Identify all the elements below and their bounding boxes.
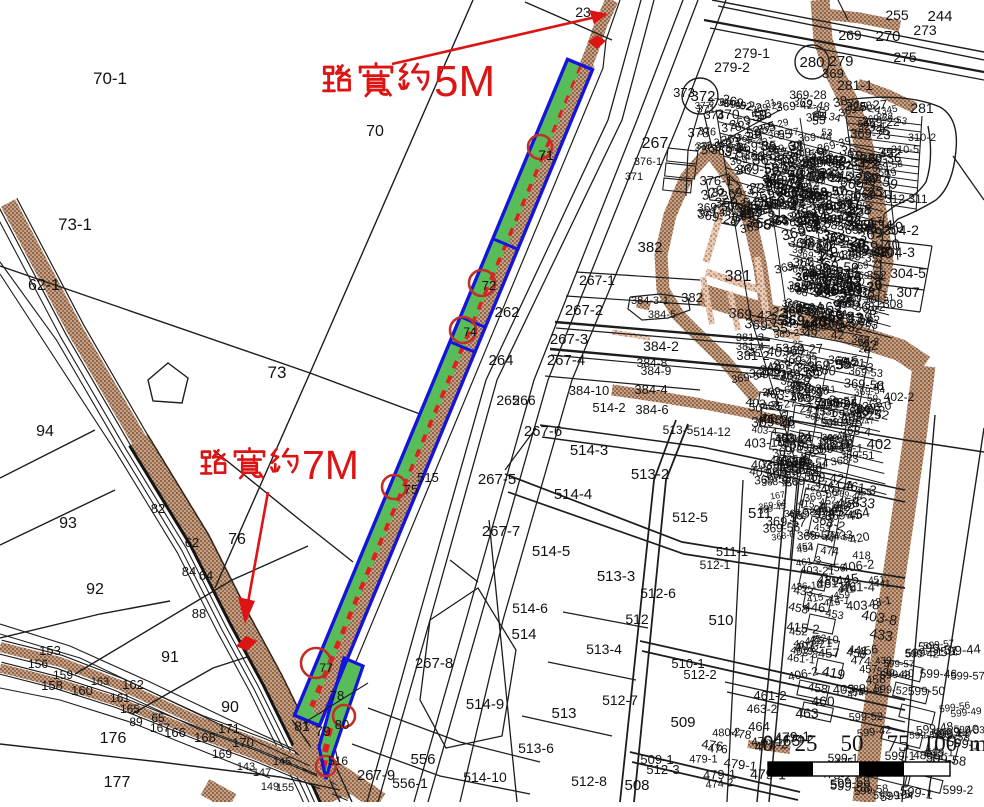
svg-text:64: 64: [199, 568, 213, 583]
svg-text:446: 446: [803, 599, 826, 615]
svg-text:599-2: 599-2: [943, 783, 974, 797]
svg-text:281-1: 281-1: [837, 77, 873, 93]
svg-text:32: 32: [846, 205, 860, 219]
svg-text:509: 509: [670, 714, 695, 731]
svg-text:474: 474: [850, 653, 871, 668]
svg-text:304-3: 304-3: [879, 244, 915, 260]
svg-text:599-40: 599-40: [880, 668, 915, 682]
svg-text:280: 280: [799, 54, 824, 71]
svg-text:73: 73: [268, 363, 287, 382]
svg-text:71: 71: [538, 147, 554, 163]
svg-text:512-8: 512-8: [571, 773, 607, 789]
svg-text:76: 76: [228, 531, 246, 548]
svg-text:512-6: 512-6: [640, 585, 676, 601]
svg-text:m: m: [969, 731, 984, 756]
svg-text:177: 177: [104, 774, 131, 791]
svg-text:264: 264: [488, 352, 513, 369]
svg-text:384-3-1: 384-3-1: [631, 295, 669, 307]
svg-text:170: 170: [232, 735, 254, 750]
svg-text:310-5: 310-5: [891, 144, 919, 156]
svg-text:512-7: 512-7: [602, 692, 638, 708]
svg-text:514-9: 514-9: [466, 696, 504, 713]
svg-text:93: 93: [59, 515, 77, 532]
svg-text:82: 82: [151, 501, 165, 516]
svg-text:167: 167: [150, 721, 170, 735]
svg-text:452: 452: [809, 633, 827, 646]
svg-text:25: 25: [795, 731, 818, 756]
svg-text:74: 74: [463, 325, 477, 339]
svg-text:513-4: 513-4: [586, 641, 622, 657]
svg-text:54: 54: [810, 208, 830, 227]
svg-text:155: 155: [276, 782, 294, 794]
svg-text:474: 474: [787, 509, 805, 522]
svg-text:371: 371: [625, 171, 643, 183]
svg-text:376-1: 376-1: [699, 173, 732, 188]
svg-text:461-2: 461-2: [753, 688, 786, 703]
svg-text:70-1: 70-1: [93, 69, 127, 88]
svg-text:145: 145: [273, 756, 291, 768]
svg-text:368-2: 368-2: [855, 300, 886, 314]
svg-text:310-2: 310-2: [908, 132, 936, 144]
svg-text:270: 270: [875, 28, 900, 45]
svg-text:599-46: 599-46: [920, 666, 958, 681]
svg-text:479-1: 479-1: [689, 753, 717, 765]
svg-text:514-3: 514-3: [570, 442, 608, 459]
svg-text:381-4: 381-4: [736, 341, 764, 353]
svg-text:37: 37: [763, 170, 779, 186]
svg-text:62: 62: [185, 535, 199, 550]
svg-text:512-3: 512-3: [646, 762, 679, 777]
svg-text:147: 147: [253, 767, 271, 779]
svg-text:378: 378: [725, 143, 743, 155]
svg-text:153: 153: [39, 643, 61, 658]
svg-text:42: 42: [831, 328, 845, 342]
svg-text:511: 511: [748, 505, 772, 522]
svg-text:89: 89: [129, 715, 143, 729]
svg-text:156: 156: [28, 657, 48, 671]
svg-text:369-57: 369-57: [805, 183, 846, 201]
svg-text:75: 75: [887, 731, 910, 756]
svg-text:514: 514: [511, 626, 536, 643]
svg-text:403-19: 403-19: [769, 454, 807, 468]
svg-text:514-12: 514-12: [693, 425, 731, 439]
svg-text:445: 445: [815, 505, 837, 521]
svg-text:384-10: 384-10: [569, 383, 609, 398]
svg-text:168: 168: [194, 730, 216, 745]
svg-text:73-1: 73-1: [58, 215, 92, 234]
svg-text:159: 159: [53, 668, 73, 682]
svg-text:311: 311: [908, 192, 927, 206]
svg-text:324-1: 324-1: [858, 121, 886, 133]
svg-text:474: 474: [815, 479, 834, 492]
svg-text:78: 78: [330, 688, 344, 703]
svg-text:513-2: 513-2: [631, 466, 669, 483]
svg-text:267-5: 267-5: [478, 471, 516, 488]
svg-text:384-9: 384-9: [641, 364, 672, 378]
svg-text:511-1: 511-1: [716, 544, 748, 559]
svg-text:75: 75: [404, 482, 418, 497]
svg-text:460: 460: [811, 693, 835, 709]
svg-text:516: 516: [328, 754, 348, 768]
svg-text:515: 515: [417, 470, 439, 485]
svg-text:162: 162: [122, 677, 144, 692]
svg-text:267: 267: [642, 135, 669, 152]
svg-text:49: 49: [803, 325, 818, 341]
svg-text:88: 88: [192, 606, 206, 621]
svg-text:384-6: 384-6: [635, 402, 668, 417]
svg-text:368: 368: [814, 282, 839, 299]
svg-text:381: 381: [725, 268, 752, 285]
svg-text:279-2: 279-2: [714, 59, 750, 75]
svg-text:50: 50: [841, 731, 864, 756]
svg-text:363: 363: [768, 213, 790, 229]
svg-text:370: 370: [716, 106, 740, 122]
svg-text:171: 171: [218, 721, 240, 736]
svg-text:72: 72: [482, 278, 496, 293]
svg-text:480-2: 480-2: [712, 726, 741, 739]
svg-text:0: 0: [762, 731, 774, 756]
svg-text:84: 84: [182, 564, 196, 579]
svg-text:90: 90: [221, 699, 239, 716]
svg-text:304-2: 304-2: [883, 222, 919, 238]
svg-text:433: 433: [851, 492, 877, 511]
svg-text:403-2: 403-2: [791, 391, 822, 405]
svg-text:53: 53: [821, 127, 833, 139]
svg-text:376-1: 376-1: [634, 156, 662, 168]
svg-text:267-7: 267-7: [482, 523, 520, 540]
svg-text:62-1: 62-1: [28, 277, 60, 294]
svg-text:369-28: 369-28: [789, 88, 827, 102]
svg-text:599-52: 599-52: [849, 711, 884, 724]
svg-text:39: 39: [793, 214, 809, 230]
svg-text:376-1: 376-1: [696, 139, 723, 152]
svg-text:266: 266: [512, 392, 536, 408]
svg-text:513: 513: [551, 705, 576, 722]
svg-text:80: 80: [335, 717, 349, 732]
svg-text:267-6: 267-6: [524, 423, 562, 440]
svg-text:452: 452: [789, 626, 808, 638]
svg-text:267-3: 267-3: [550, 331, 588, 348]
svg-text:369-50: 369-50: [697, 200, 735, 215]
svg-text:275: 275: [893, 49, 917, 65]
svg-text:513-6: 513-6: [518, 740, 554, 756]
svg-text:312: 312: [885, 192, 905, 206]
svg-text:143: 143: [237, 761, 255, 773]
svg-text:403-10: 403-10: [818, 441, 850, 453]
svg-text:22: 22: [770, 303, 787, 320]
svg-text:514-6: 514-6: [512, 600, 548, 616]
svg-text:94: 94: [36, 423, 54, 440]
svg-text:269: 269: [838, 27, 862, 43]
svg-text:273: 273: [913, 22, 937, 38]
svg-text:463-2: 463-2: [747, 702, 778, 716]
svg-text:513-3: 513-3: [597, 568, 635, 585]
svg-text:512-5: 512-5: [672, 509, 708, 525]
svg-text:510: 510: [708, 612, 733, 629]
svg-text:382: 382: [681, 290, 703, 305]
svg-text:281: 281: [910, 100, 934, 116]
svg-text:512-2: 512-2: [683, 667, 716, 682]
svg-text:382: 382: [637, 239, 662, 256]
svg-text:165: 165: [120, 702, 140, 716]
svg-text:176: 176: [100, 730, 127, 747]
svg-text:160: 160: [71, 683, 93, 698]
svg-text:514-10: 514-10: [463, 769, 507, 785]
svg-text:346: 346: [854, 173, 876, 188]
svg-text:23: 23: [575, 4, 591, 20]
svg-text:267-4: 267-4: [547, 352, 585, 369]
svg-text:373: 373: [673, 85, 695, 100]
svg-text:267-8: 267-8: [415, 655, 453, 672]
svg-text:70: 70: [366, 123, 384, 140]
svg-text:599-50: 599-50: [908, 684, 946, 698]
svg-text:304-5: 304-5: [890, 265, 926, 281]
svg-text:418: 418: [852, 550, 871, 563]
svg-text:556-1: 556-1: [392, 775, 428, 791]
svg-text:369-59: 369-59: [752, 150, 799, 169]
svg-text:512: 512: [625, 611, 649, 627]
svg-text:267-9: 267-9: [357, 767, 395, 784]
svg-text:402-2: 402-2: [884, 390, 915, 404]
svg-text:403-24: 403-24: [775, 432, 813, 446]
svg-text:262: 262: [494, 304, 519, 321]
svg-text:514-5: 514-5: [532, 543, 570, 560]
svg-text:514-2: 514-2: [592, 400, 625, 415]
svg-text:514-4: 514-4: [554, 486, 592, 503]
svg-text:385: 385: [801, 364, 823, 379]
svg-text:403-5: 403-5: [768, 368, 796, 380]
svg-text:474: 474: [820, 545, 839, 558]
svg-text:433: 433: [832, 527, 854, 543]
svg-text:81: 81: [294, 718, 310, 734]
svg-text:43-1: 43-1: [827, 593, 850, 607]
svg-text:352: 352: [831, 158, 853, 174]
svg-text:599-104: 599-104: [873, 790, 913, 802]
svg-text:5M: 5M: [434, 57, 495, 106]
svg-text:163: 163: [91, 676, 109, 688]
svg-text:457: 457: [818, 645, 840, 660]
svg-text:376: 376: [697, 125, 716, 138]
svg-text:308: 308: [883, 297, 903, 311]
svg-text:7M: 7M: [302, 442, 359, 488]
svg-text:402: 402: [866, 436, 891, 453]
svg-text:453: 453: [813, 523, 831, 535]
svg-text:255: 255: [885, 7, 909, 23]
svg-text:451: 451: [868, 574, 886, 587]
svg-text:46: 46: [802, 233, 816, 247]
svg-text:513-5: 513-5: [663, 423, 694, 437]
svg-text:267-2: 267-2: [565, 302, 603, 319]
svg-text:384-2: 384-2: [643, 338, 679, 354]
svg-text:91: 91: [161, 649, 179, 666]
svg-text:79: 79: [315, 723, 331, 739]
svg-text:508: 508: [624, 777, 649, 794]
svg-text:100: 100: [923, 731, 958, 756]
svg-text:92: 92: [86, 581, 104, 598]
svg-text:169: 169: [212, 747, 232, 761]
svg-text:384-4: 384-4: [634, 382, 667, 397]
svg-text:512-1: 512-1: [700, 558, 731, 572]
svg-text:267-1: 267-1: [579, 272, 615, 288]
svg-text:384-5: 384-5: [648, 309, 676, 321]
svg-text:77: 77: [319, 661, 333, 675]
svg-text:325: 325: [845, 99, 867, 114]
svg-text:556: 556: [410, 751, 435, 768]
